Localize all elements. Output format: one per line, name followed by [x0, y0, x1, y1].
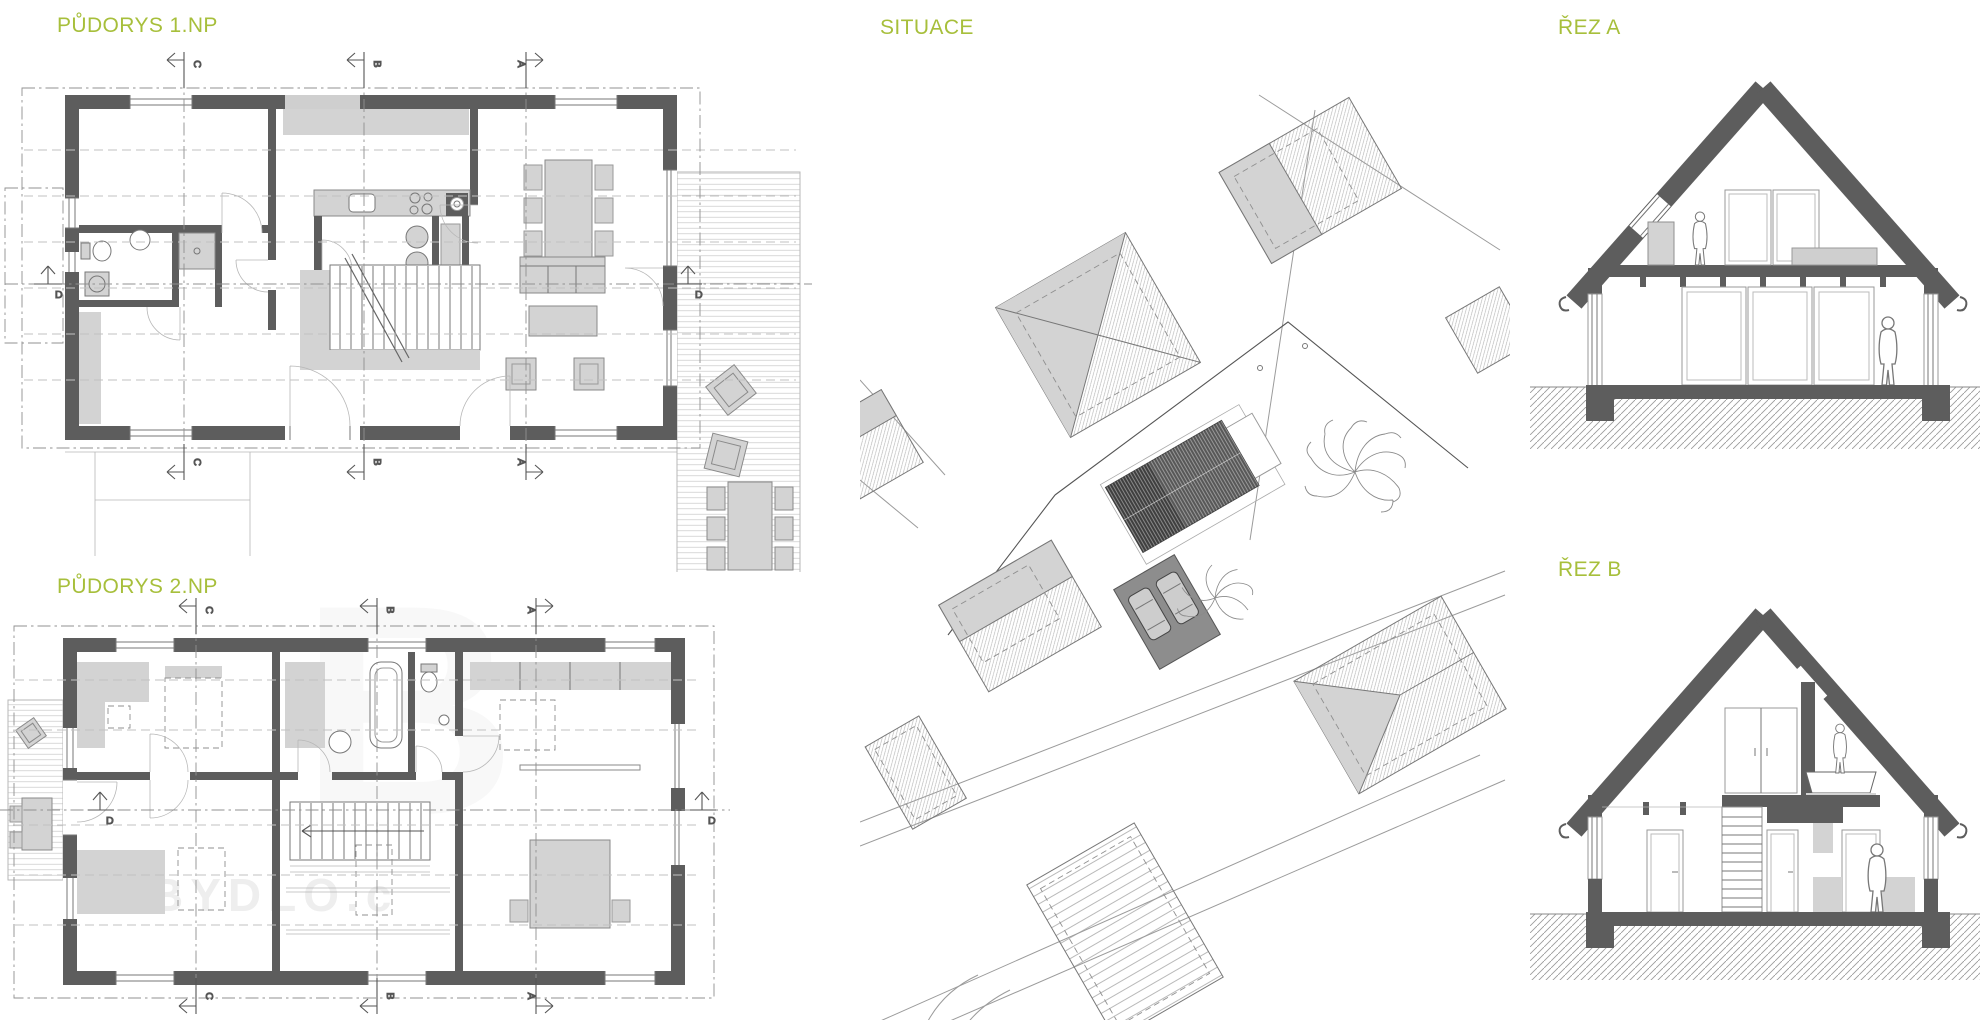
carport-overhang: [5, 188, 63, 343]
floor-slab: [1602, 265, 1924, 287]
subject-building: [1100, 401, 1291, 564]
section-a-drawing: [1530, 50, 1980, 470]
building-south: [1027, 823, 1223, 1020]
toilet: [421, 672, 437, 692]
section-marker-d-left: D: [88, 792, 114, 827]
svg-text:D: D: [708, 815, 716, 827]
section-marker-a-top: A: [515, 52, 543, 88]
bedroom-right: [470, 662, 671, 928]
stairs: [1722, 807, 1762, 912]
bedroom-left-bottom: [77, 848, 225, 914]
terrace: [677, 172, 800, 572]
site-panel: [860, 50, 1510, 1020]
toilet: [93, 241, 111, 261]
section-marker-a-bottom: A: [515, 444, 543, 480]
lower-floor: [1682, 287, 1897, 385]
svg-text:A: A: [525, 992, 537, 999]
balcony: [8, 700, 63, 880]
wardrobe: [79, 312, 101, 424]
coffee-table: [529, 306, 597, 336]
section-b-drawing: [1530, 590, 1980, 1020]
person-figure: [1834, 724, 1847, 773]
toilet-tank: [81, 243, 90, 259]
building-east-hip: [1294, 596, 1506, 794]
bath-closet: [285, 662, 325, 748]
svg-text:D: D: [695, 289, 703, 301]
balcony-table: [22, 798, 52, 850]
bed-outline: [165, 678, 222, 748]
svg-text:B: B: [384, 992, 396, 999]
bathtub: [1806, 772, 1876, 793]
gutter-hook: [1560, 297, 1569, 311]
svg-text:B: B: [371, 458, 383, 465]
dining-set: [524, 160, 613, 260]
section-a-panel: [1530, 50, 1980, 470]
gutter-hook: [1957, 297, 1966, 311]
section-b-panel: [1530, 590, 1980, 1020]
building-southwest: [939, 540, 1102, 692]
outdoor-dining-set: [707, 482, 793, 570]
section-marker-c-top: C: [179, 598, 215, 634]
paving: [65, 452, 677, 556]
plan2-panel: C B A C B A D D: [0, 570, 740, 1020]
building-edge-right: [1446, 287, 1510, 373]
door: [1767, 830, 1798, 912]
section-marker-b-top: B: [347, 52, 383, 88]
svg-text:A: A: [515, 60, 527, 67]
section-marker-b-top: B: [360, 598, 396, 634]
svg-text:C: C: [191, 458, 203, 466]
armchair: [506, 358, 536, 390]
section-marker-b-bottom: B: [347, 444, 383, 480]
bed-outline: [178, 848, 225, 910]
svg-text:C: C: [203, 606, 215, 614]
building-north: [1219, 97, 1401, 263]
site-drawing: [860, 50, 1510, 1020]
bathroom: [79, 230, 215, 424]
parking: [1114, 555, 1221, 670]
sofa-group: [506, 257, 605, 390]
building-far-west: [865, 716, 966, 829]
svg-text:C: C: [191, 60, 203, 68]
plan2-drawing: C B A C B A D D: [0, 570, 740, 1020]
section-marker-d-left: D: [34, 266, 63, 301]
kitchen-sink: [349, 194, 375, 212]
svg-text:B: B: [371, 60, 383, 67]
bathroom: [285, 662, 449, 753]
gutter-hook: [1957, 824, 1966, 838]
stairs: [290, 802, 430, 872]
svg-text:C: C: [203, 992, 215, 1000]
building-west-hip: [996, 233, 1201, 438]
bedroom-left-top: [77, 662, 222, 748]
person-figure: [1693, 212, 1707, 265]
plan1-drawing: C B A C B A D D: [0, 0, 820, 572]
sink: [130, 230, 150, 250]
svg-text:A: A: [515, 458, 527, 465]
upper-floor: [1648, 190, 1877, 265]
tree: [1305, 420, 1405, 512]
kitchen: [314, 190, 470, 274]
section-marker-c-bottom: C: [167, 444, 203, 480]
stairs: [300, 254, 480, 370]
gutter-hook: [1560, 824, 1569, 838]
section-a-title: ŘEZ A: [1558, 16, 1621, 40]
section-marker-d-right: D: [690, 792, 716, 827]
lower-floor: [1647, 830, 1915, 912]
site-title: SITUACE: [880, 16, 974, 40]
person-figure: [1879, 317, 1897, 385]
survey-dots: [1258, 344, 1308, 371]
armchair: [574, 358, 604, 390]
section-marker-c-top: C: [167, 52, 203, 88]
door: [1647, 830, 1683, 912]
drawing-sheet: PŮDORYS 1.NP PŮDORYS 2.NP SITUACE ŘEZ A …: [0, 0, 1980, 1020]
svg-text:D: D: [106, 815, 114, 827]
svg-text:B: B: [384, 606, 396, 613]
svg-text:A: A: [525, 606, 537, 613]
building-edge-left: [860, 390, 923, 502]
pantry-shelf: [441, 224, 460, 266]
bed: [530, 840, 610, 928]
roads: [860, 95, 1505, 1020]
section-b-title: ŘEZ B: [1558, 558, 1622, 582]
sink: [329, 731, 351, 753]
section-marker-a-top: A: [525, 598, 553, 634]
plan1-panel: C B A C B A D D: [0, 0, 820, 572]
round-table: [406, 226, 428, 248]
svg-text:D: D: [55, 289, 63, 301]
